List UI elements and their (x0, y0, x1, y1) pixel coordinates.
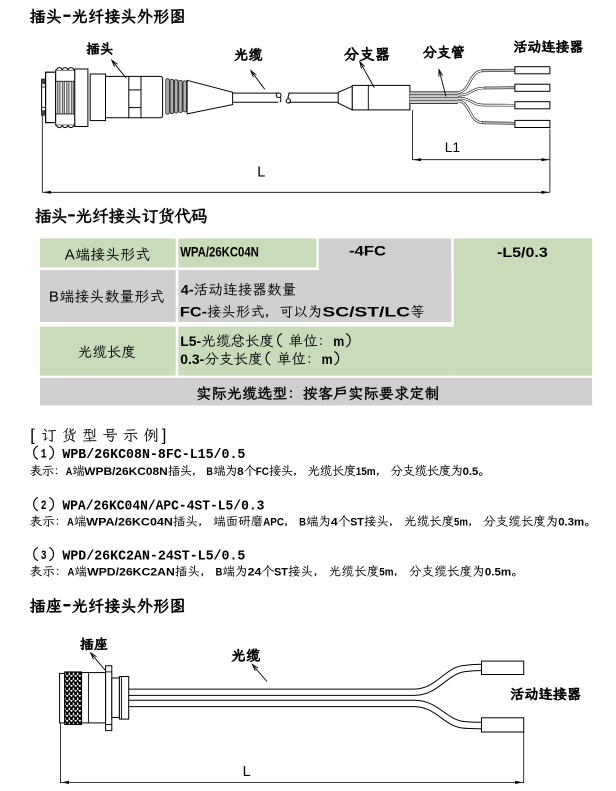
svg-text:B: B (216, 567, 223, 579)
svg-text:WPA/26KC04N: WPA/26KC04N (86, 517, 173, 529)
svg-text:WPA/26KC04N/APC-4ST-L5/0.3: WPA/26KC04N/APC-4ST-L5/0.3 (62, 499, 264, 514)
svg-text:L1: L1 (445, 140, 460, 155)
svg-text:ST: ST (274, 567, 288, 579)
svg-text:4-: 4- (181, 283, 194, 298)
svg-text:SC/ST/LC: SC/ST/LC (322, 304, 410, 320)
svg-text:5m: 5m (454, 517, 468, 529)
svg-text:B: B (299, 517, 306, 529)
svg-text:5m: 5m (379, 567, 393, 579)
svg-text:3: 3 (41, 549, 47, 563)
svg-text:B: B (206, 466, 213, 478)
svg-text:WPD/26KC2AN: WPD/26KC2AN (87, 567, 175, 579)
svg-text:ST: ST (350, 517, 364, 529)
svg-text:A: A (67, 517, 74, 529)
svg-text:8: 8 (237, 466, 244, 478)
svg-text:A: A (66, 466, 73, 478)
svg-text:]: ] (162, 427, 167, 445)
svg-text:-L5/0.3: -L5/0.3 (497, 245, 548, 260)
svg-text:15m: 15m (356, 466, 376, 478)
svg-text:FC: FC (256, 466, 269, 478)
svg-text:WPB/26KC08N: WPB/26KC08N (84, 466, 167, 478)
svg-text:-4FC: -4FC (349, 244, 386, 259)
svg-text:A: A (65, 247, 75, 264)
svg-text:L: L (257, 165, 265, 181)
svg-text:0.5: 0.5 (463, 466, 479, 478)
svg-text:0.5m: 0.5m (485, 567, 511, 579)
svg-text:[: [ (30, 427, 35, 445)
svg-text:m: m (322, 351, 333, 367)
svg-text:4: 4 (331, 517, 339, 529)
svg-text:m: m (333, 333, 344, 349)
svg-text:WPA/26KC04N: WPA/26KC04N (180, 243, 259, 259)
svg-text:WPB/26KC08N-8FC-L15/0.5: WPB/26KC08N-8FC-L15/0.5 (62, 448, 245, 463)
svg-text:L: L (243, 764, 251, 780)
svg-text:0.3-: 0.3- (180, 352, 204, 367)
svg-text:1: 1 (41, 448, 47, 462)
svg-text:0.3m: 0.3m (558, 517, 584, 529)
svg-text:24: 24 (248, 567, 262, 579)
svg-text:B: B (49, 289, 59, 306)
svg-text:WPD/26KC2AN-24ST-L5/0.5: WPD/26KC2AN-24ST-L5/0.5 (62, 549, 245, 564)
svg-text:L5-: L5- (180, 334, 201, 349)
svg-text:APC: APC (263, 517, 284, 529)
svg-text:FC-: FC- (180, 305, 207, 320)
svg-text:2: 2 (41, 499, 47, 513)
svg-text:A: A (68, 567, 75, 579)
